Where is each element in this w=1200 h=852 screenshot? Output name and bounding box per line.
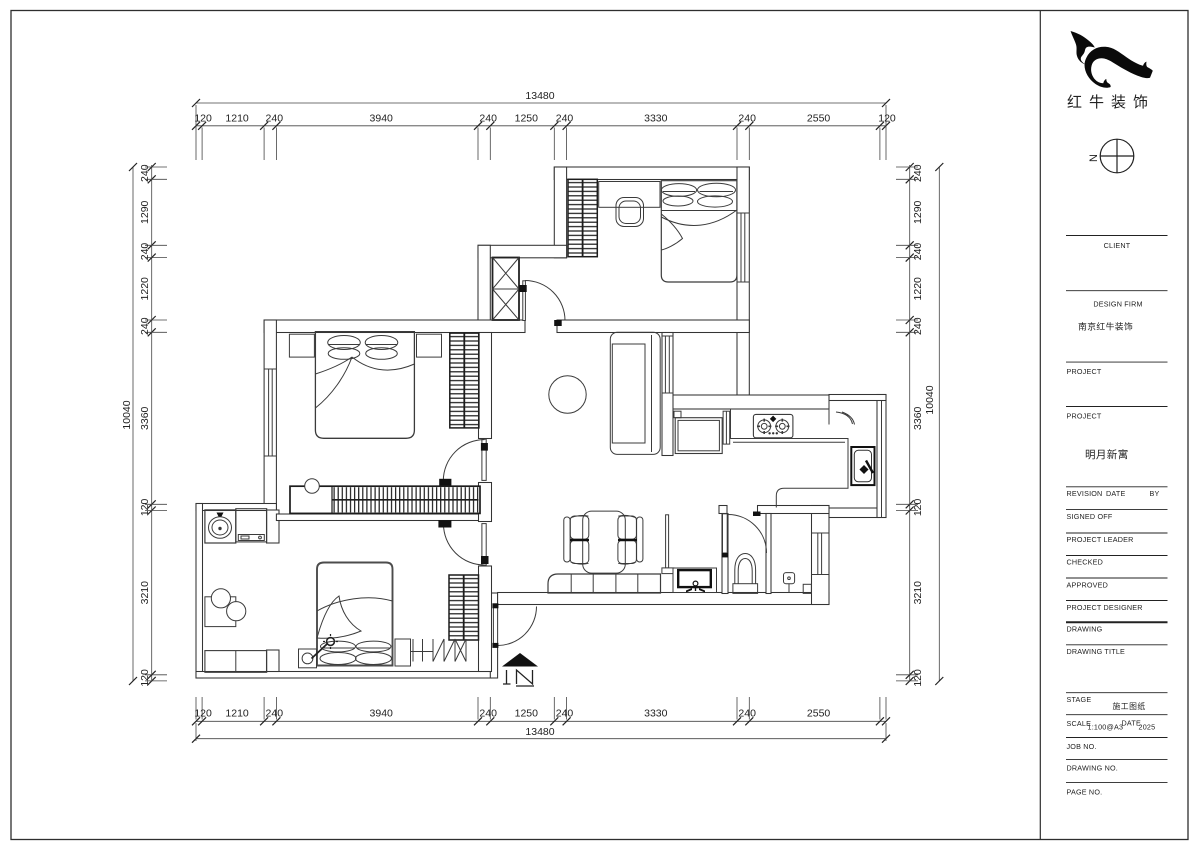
svg-text:SIGNED OFF: SIGNED OFF bbox=[1067, 512, 1113, 521]
svg-text:2550: 2550 bbox=[807, 708, 831, 720]
svg-text:DATE: DATE bbox=[1106, 489, 1125, 498]
svg-text:DRAWING: DRAWING bbox=[1067, 625, 1103, 634]
svg-text:240: 240 bbox=[139, 164, 151, 182]
svg-text:DESIGN FIRM: DESIGN FIRM bbox=[1093, 300, 1142, 309]
svg-text:240: 240 bbox=[266, 708, 284, 720]
svg-text:CHECKED: CHECKED bbox=[1067, 558, 1104, 567]
svg-text:120: 120 bbox=[139, 498, 151, 516]
svg-text:13480: 13480 bbox=[525, 726, 554, 738]
svg-text:120: 120 bbox=[878, 113, 896, 125]
svg-text:120: 120 bbox=[194, 708, 212, 720]
svg-text:240: 240 bbox=[139, 317, 151, 335]
svg-text:南京红牛装饰: 南京红牛装饰 bbox=[1078, 321, 1133, 332]
svg-text:240: 240 bbox=[912, 243, 924, 261]
svg-text:240: 240 bbox=[479, 113, 497, 125]
svg-text:120: 120 bbox=[194, 113, 212, 125]
svg-text:120: 120 bbox=[139, 669, 151, 687]
svg-text:PROJECT DESIGNER: PROJECT DESIGNER bbox=[1067, 603, 1143, 612]
svg-text:施工图纸: 施工图纸 bbox=[1113, 701, 1146, 711]
svg-text:10040: 10040 bbox=[121, 400, 133, 429]
svg-text:3330: 3330 bbox=[644, 113, 668, 125]
svg-text:1:100@A3: 1:100@A3 bbox=[1088, 723, 1124, 732]
svg-text:3940: 3940 bbox=[370, 708, 394, 720]
svg-text:3210: 3210 bbox=[139, 581, 151, 605]
svg-text:3360: 3360 bbox=[912, 406, 924, 430]
svg-text:120: 120 bbox=[912, 669, 924, 687]
svg-text:PAGE NO.: PAGE NO. bbox=[1067, 788, 1103, 797]
svg-text:240: 240 bbox=[139, 243, 151, 261]
svg-text:BY: BY bbox=[1150, 489, 1160, 498]
svg-text:2550: 2550 bbox=[807, 113, 831, 125]
svg-text:PROJECT: PROJECT bbox=[1067, 367, 1102, 376]
svg-text:1250: 1250 bbox=[515, 113, 539, 125]
svg-text:1220: 1220 bbox=[912, 277, 924, 301]
svg-text:STAGE: STAGE bbox=[1067, 695, 1092, 704]
svg-text:240: 240 bbox=[738, 113, 756, 125]
svg-text:240: 240 bbox=[479, 708, 497, 720]
svg-text:明月新寓: 明月新寓 bbox=[1085, 448, 1129, 461]
svg-text:1210: 1210 bbox=[225, 113, 249, 125]
svg-text:3210: 3210 bbox=[912, 581, 924, 605]
svg-text:3330: 3330 bbox=[644, 708, 668, 720]
svg-text:2025: 2025 bbox=[1139, 723, 1156, 732]
svg-text:1290: 1290 bbox=[912, 200, 924, 224]
svg-text:1210: 1210 bbox=[225, 708, 249, 720]
svg-text:红牛装饰: 红牛装饰 bbox=[1067, 94, 1155, 111]
svg-text:PROJECT LEADER: PROJECT LEADER bbox=[1067, 535, 1134, 544]
svg-text:1290: 1290 bbox=[139, 200, 151, 224]
svg-text:PROJECT: PROJECT bbox=[1067, 412, 1102, 421]
svg-text:240: 240 bbox=[912, 164, 924, 182]
svg-text:CLIENT: CLIENT bbox=[1104, 241, 1131, 250]
svg-text:APPROVED: APPROVED bbox=[1067, 580, 1109, 589]
svg-text:DRAWING NO.: DRAWING NO. bbox=[1067, 764, 1118, 773]
svg-text:240: 240 bbox=[556, 113, 574, 125]
svg-text:JOB NO.: JOB NO. bbox=[1067, 742, 1097, 751]
svg-text:13480: 13480 bbox=[525, 90, 554, 102]
svg-text:240: 240 bbox=[912, 317, 924, 335]
svg-text:DRAWING TITLE: DRAWING TITLE bbox=[1067, 647, 1126, 656]
svg-text:120: 120 bbox=[912, 498, 924, 516]
svg-text:10040: 10040 bbox=[924, 385, 936, 414]
svg-text:240: 240 bbox=[738, 708, 756, 720]
svg-text:1220: 1220 bbox=[139, 277, 151, 301]
svg-text:240: 240 bbox=[556, 708, 574, 720]
svg-text:240: 240 bbox=[266, 113, 284, 125]
svg-text:3360: 3360 bbox=[139, 406, 151, 430]
svg-text:N: N bbox=[1088, 154, 1100, 162]
svg-text:1250: 1250 bbox=[515, 708, 539, 720]
svg-text:REVISION: REVISION bbox=[1067, 489, 1103, 498]
svg-text:3940: 3940 bbox=[370, 113, 394, 125]
